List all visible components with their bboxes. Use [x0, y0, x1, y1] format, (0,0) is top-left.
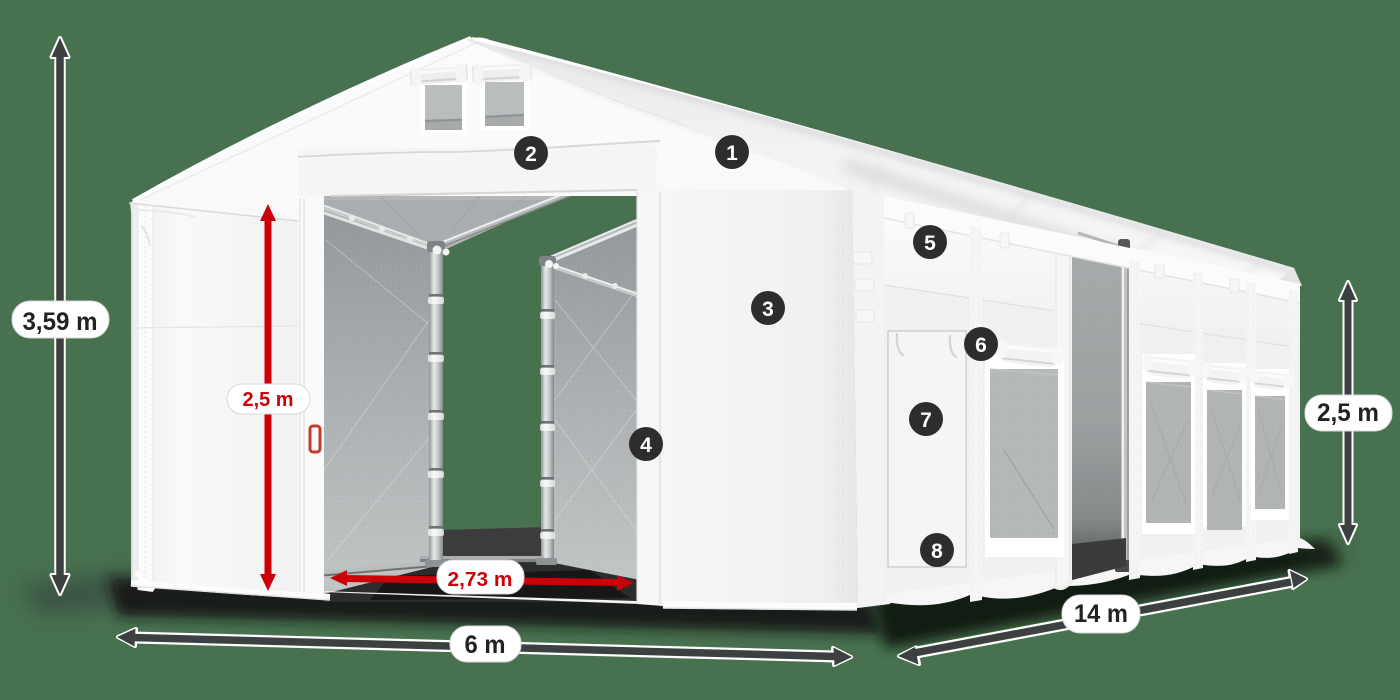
svg-text:1: 1 [726, 142, 738, 165]
svg-text:6: 6 [975, 334, 987, 357]
svg-text:7: 7 [920, 409, 932, 432]
svg-text:4: 4 [640, 434, 652, 457]
svg-text:2: 2 [525, 143, 537, 166]
svg-text:2,5 m: 2,5 m [1317, 399, 1379, 427]
svg-text:5: 5 [924, 232, 936, 255]
svg-text:14 m: 14 m [1074, 600, 1128, 628]
svg-text:3: 3 [762, 298, 774, 321]
svg-text:2,73 m: 2,73 m [448, 569, 513, 591]
svg-text:6 m: 6 m [465, 631, 506, 659]
svg-text:3,59 m: 3,59 m [23, 308, 98, 336]
svg-text:8: 8 [931, 540, 943, 563]
svg-text:2,5 m: 2,5 m [243, 389, 294, 411]
